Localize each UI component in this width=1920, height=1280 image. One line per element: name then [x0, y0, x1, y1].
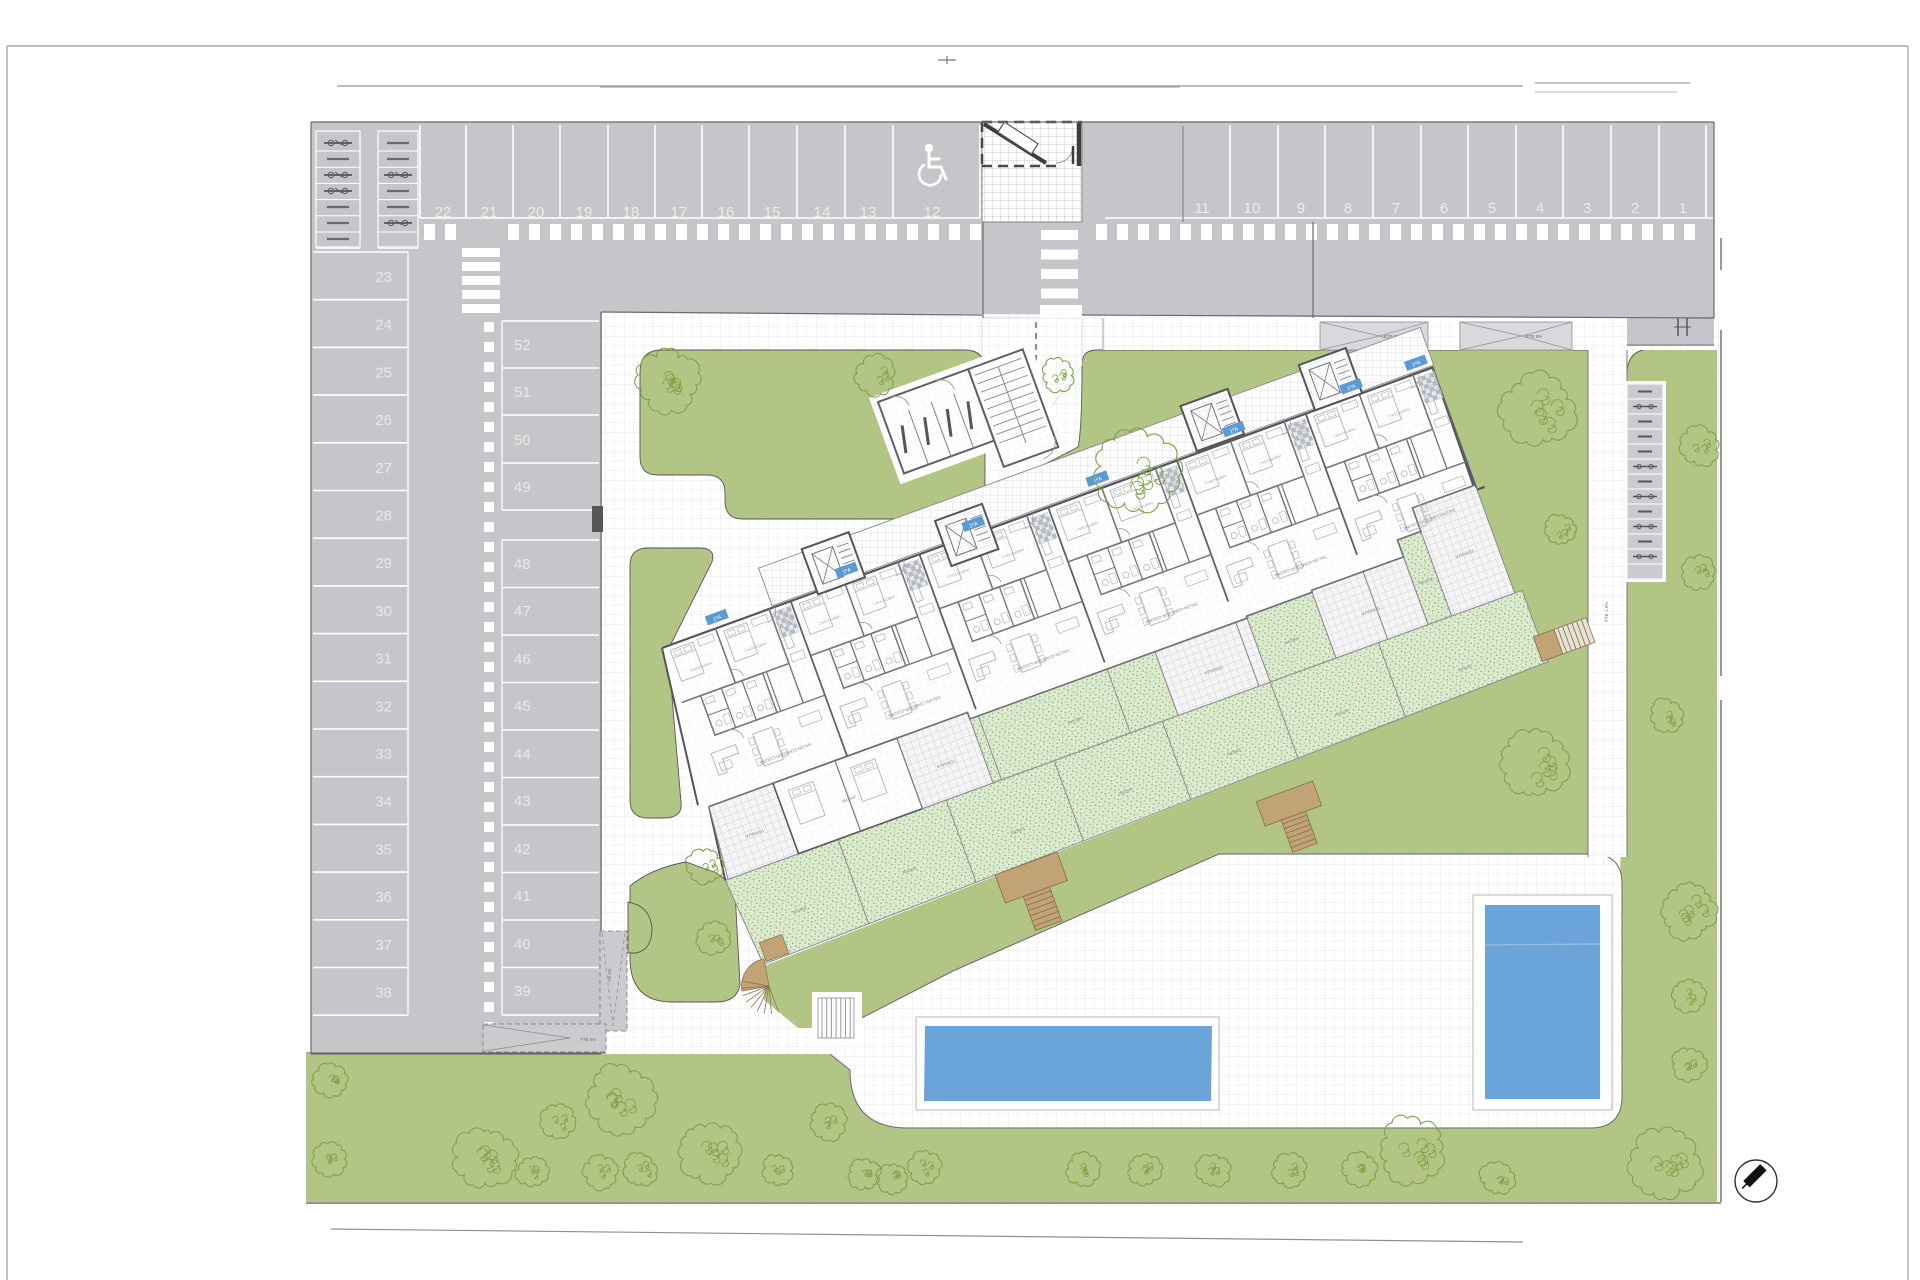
- svg-text:26: 26: [375, 412, 392, 429]
- svg-text:44: 44: [514, 746, 531, 763]
- svg-text:18: 18: [623, 204, 640, 221]
- svg-text:PTE 1.5%: PTE 1.5%: [1604, 602, 1609, 622]
- svg-text:49: 49: [514, 479, 531, 496]
- svg-text:20: 20: [528, 204, 545, 221]
- svg-text:15: 15: [764, 204, 781, 221]
- svg-text:21: 21: [481, 204, 498, 221]
- svg-text:12: 12: [924, 204, 941, 221]
- svg-text:HE 6%: HE 6%: [607, 968, 612, 981]
- svg-text:46: 46: [514, 651, 531, 668]
- svg-text:31: 31: [375, 651, 392, 668]
- svg-text:24: 24: [375, 317, 392, 334]
- svg-text:35: 35: [375, 841, 392, 858]
- svg-text:32: 32: [375, 698, 392, 715]
- svg-text:28: 28: [375, 508, 392, 525]
- svg-text:52: 52: [514, 337, 531, 354]
- svg-text:3: 3: [1583, 200, 1591, 217]
- svg-text:33: 33: [375, 746, 392, 763]
- svg-text:39: 39: [514, 983, 531, 1000]
- svg-text:37: 37: [375, 937, 392, 954]
- svg-text:5: 5: [1488, 200, 1496, 217]
- svg-text:41: 41: [514, 888, 531, 905]
- svg-text:10: 10: [1244, 200, 1261, 217]
- svg-text:40: 40: [514, 936, 531, 953]
- svg-text:16: 16: [718, 204, 735, 221]
- svg-text:50: 50: [514, 432, 531, 449]
- svg-text:PTE 6%: PTE 6%: [580, 1037, 596, 1042]
- svg-text:4: 4: [1536, 200, 1544, 217]
- svg-text:9: 9: [1297, 200, 1305, 217]
- svg-text:22: 22: [435, 204, 452, 221]
- svg-text:23: 23: [375, 269, 392, 286]
- svg-text:14: 14: [814, 204, 831, 221]
- svg-text:45: 45: [514, 698, 531, 715]
- svg-text:1: 1: [1679, 200, 1687, 217]
- svg-text:2: 2: [1631, 200, 1639, 217]
- svg-text:19: 19: [576, 204, 593, 221]
- svg-text:48: 48: [514, 556, 531, 573]
- svg-text:36: 36: [375, 889, 392, 906]
- svg-text:13: 13: [860, 204, 877, 221]
- svg-text:42: 42: [514, 841, 531, 858]
- svg-text:8: 8: [1344, 200, 1352, 217]
- svg-text:34: 34: [375, 794, 392, 811]
- svg-text:43: 43: [514, 793, 531, 810]
- svg-text:30: 30: [375, 603, 392, 620]
- svg-text:51: 51: [514, 384, 531, 401]
- svg-text:7: 7: [1392, 200, 1400, 217]
- svg-text:47: 47: [514, 603, 531, 620]
- svg-text:11: 11: [1194, 200, 1210, 217]
- svg-text:38: 38: [375, 985, 392, 1002]
- svg-text:27: 27: [375, 460, 392, 477]
- svg-text:25: 25: [375, 364, 392, 381]
- svg-text:PTE 8%: PTE 8%: [1526, 334, 1543, 339]
- svg-text:6: 6: [1440, 200, 1448, 217]
- svg-text:17: 17: [671, 204, 688, 221]
- svg-text:29: 29: [375, 555, 392, 572]
